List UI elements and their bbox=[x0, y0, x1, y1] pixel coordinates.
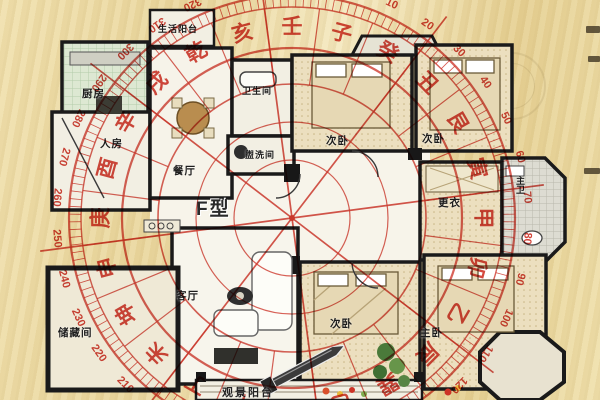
room-label-bedroom2-top-right: 次卧 bbox=[422, 131, 445, 146]
room-label-maid: 人房 bbox=[100, 136, 123, 151]
edge-mark bbox=[584, 168, 600, 174]
toilet bbox=[522, 231, 542, 245]
floorplan-page: 0102030405060708090100110120130140150160… bbox=[0, 0, 600, 400]
room-label-dining: 餐厅 bbox=[173, 163, 196, 178]
room-label-bedroom2-bottom: 次卧 bbox=[330, 316, 353, 331]
room-label-master-bath: 主卫 bbox=[514, 176, 527, 194]
unit-type-label: F型 bbox=[196, 194, 231, 221]
chair bbox=[172, 128, 182, 138]
room-label-bedroom2-top-center: 次卧 bbox=[326, 133, 349, 148]
room-label-master-bedroom: 主卧 bbox=[420, 325, 443, 340]
room-label-service-balcony: 生活阳台 bbox=[158, 22, 198, 35]
kitchen-counter bbox=[70, 52, 140, 65]
room-label-view-balcony: 观景阳台 bbox=[222, 384, 274, 400]
room-label-kitchen: 厨房 bbox=[82, 86, 105, 101]
chair bbox=[204, 128, 214, 138]
room-label-washroom: 盥洗间 bbox=[245, 148, 275, 161]
sink bbox=[506, 166, 524, 176]
room-label-bathroom: 卫生间 bbox=[242, 84, 272, 97]
floorplan-drawing bbox=[0, 0, 600, 400]
chair bbox=[204, 98, 214, 108]
bay-window-bottom bbox=[480, 332, 564, 400]
room-label-living: 客厅 bbox=[176, 288, 199, 303]
room-label-storage: 储藏间 bbox=[58, 325, 93, 340]
tv-cabinet bbox=[214, 348, 258, 364]
edge-mark bbox=[586, 26, 600, 33]
room-label-dressing: 更衣 bbox=[438, 195, 461, 210]
chair bbox=[172, 98, 182, 108]
edge-mark bbox=[588, 56, 600, 62]
